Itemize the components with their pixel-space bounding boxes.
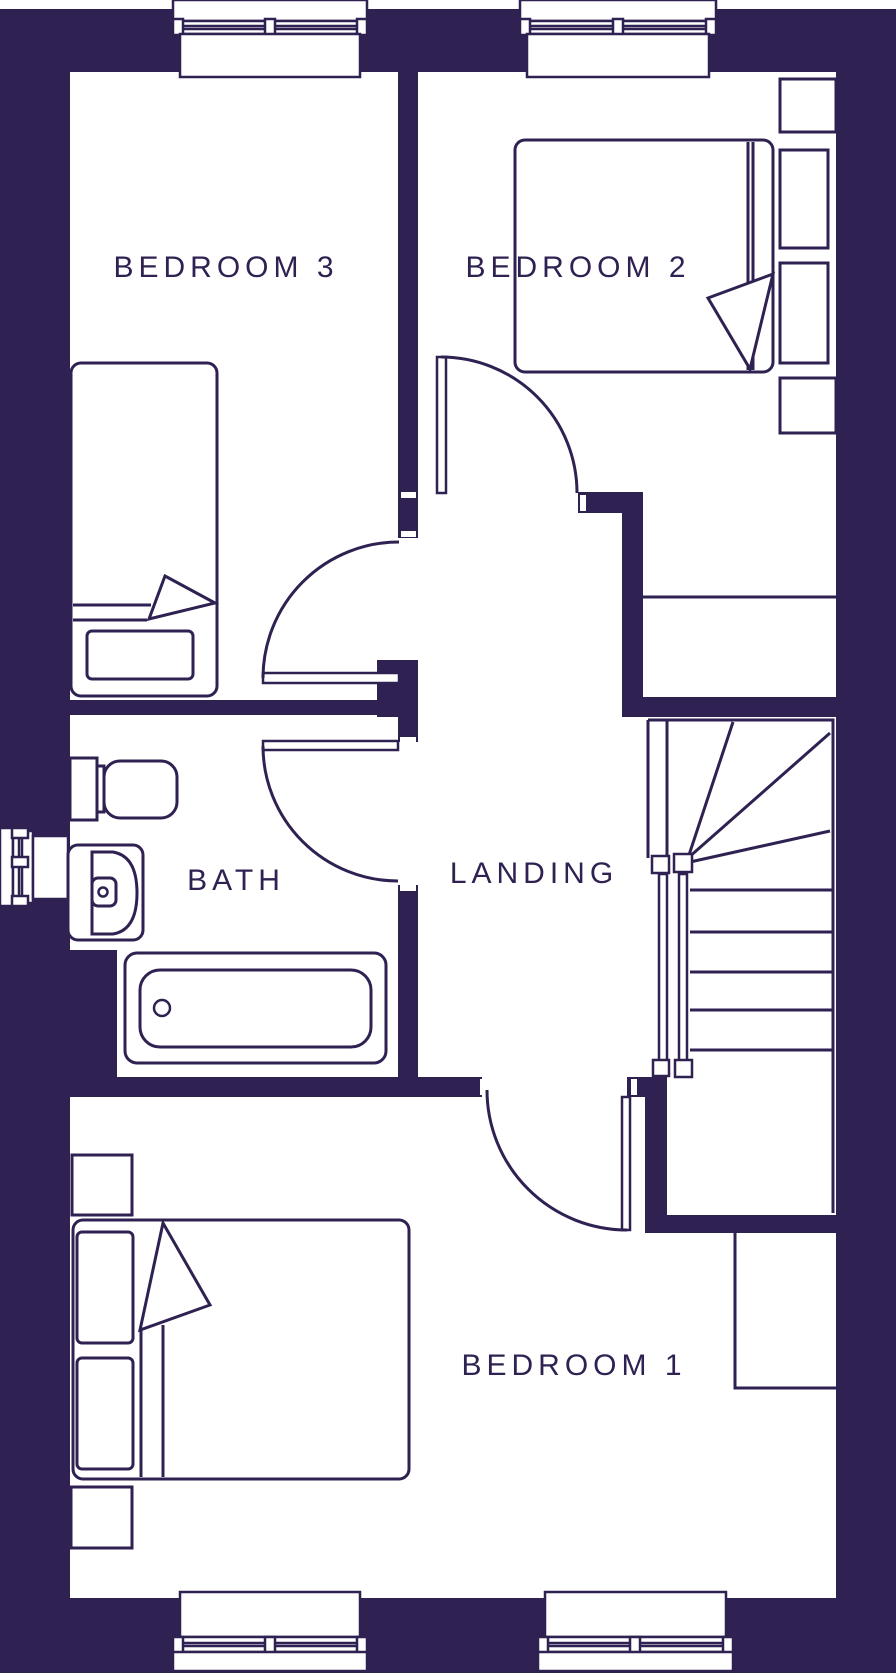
stairs-handrail-left bbox=[659, 874, 667, 1066]
room-label-landing: LANDING bbox=[450, 857, 618, 890]
headboard-cabinet bbox=[780, 150, 828, 248]
window-jamb bbox=[357, 19, 367, 35]
stairs-newel-post bbox=[675, 1060, 692, 1077]
door-bedroom2 bbox=[437, 357, 577, 493]
window-mullion bbox=[12, 857, 28, 867]
room-label-bath: BATH bbox=[187, 864, 285, 897]
window-inner-sill bbox=[33, 836, 68, 899]
door-bath bbox=[263, 741, 398, 881]
window-jamb bbox=[538, 1637, 548, 1653]
window-outer-frame bbox=[173, 1652, 367, 1671]
door-jamb-notch bbox=[400, 885, 416, 891]
furniture-bedroom2 bbox=[515, 79, 836, 597]
wall-bedroom2-alcove-west bbox=[622, 513, 643, 717]
window-jamb bbox=[520, 19, 530, 35]
basin-tap-block bbox=[92, 878, 116, 906]
stairs-winder-treads bbox=[688, 722, 830, 862]
door-leaf bbox=[263, 673, 399, 683]
window-bedroom2 bbox=[520, 0, 716, 77]
door-jamb-notch bbox=[480, 1079, 486, 1095]
wardrobe-alcove-outline bbox=[735, 1233, 836, 1388]
room-label-bedroom2: BEDROOM 2 bbox=[465, 251, 690, 284]
window-inner-sill bbox=[180, 34, 360, 77]
stairs-newel-post bbox=[653, 1060, 669, 1076]
window-mullion bbox=[630, 1637, 640, 1653]
wall-bedroom3-bath bbox=[70, 700, 377, 715]
door-jamb-notch bbox=[580, 495, 586, 511]
window-mullion bbox=[613, 19, 623, 35]
door-jamb-notch bbox=[401, 492, 416, 498]
wall-stairwell-south bbox=[645, 1215, 836, 1233]
door-leaf bbox=[622, 1097, 630, 1230]
window-jamb bbox=[173, 1637, 183, 1653]
stairs-newel-post bbox=[652, 856, 669, 873]
window-jamb bbox=[723, 1637, 733, 1653]
toilet-cistern bbox=[70, 758, 97, 820]
window-bedroom1-left bbox=[173, 1592, 367, 1671]
bed-pillow bbox=[77, 1232, 133, 1343]
door-bedroom1 bbox=[487, 1090, 630, 1230]
window-inner-sill bbox=[527, 34, 709, 77]
bed-pillow bbox=[77, 1358, 133, 1469]
wall-stairs-north bbox=[643, 697, 836, 717]
door-swing-arc bbox=[441, 357, 577, 493]
door-leaf bbox=[263, 741, 398, 750]
window-jamb bbox=[706, 19, 716, 35]
furniture-bedroom3 bbox=[71, 363, 217, 696]
headboard-cabinet bbox=[780, 263, 828, 363]
wall-spine-block bbox=[377, 660, 418, 717]
wall-exterior-right bbox=[836, 9, 896, 1673]
window-bedroom1-right bbox=[538, 1592, 733, 1671]
doors bbox=[263, 357, 630, 1230]
wall-bedroom2-door-stub bbox=[578, 492, 643, 513]
window-mullion bbox=[265, 1637, 275, 1653]
wall-bedroom1-north-left bbox=[70, 1077, 482, 1097]
bedside-table bbox=[72, 1155, 132, 1215]
window-bath bbox=[0, 828, 68, 906]
stairs-outline bbox=[648, 720, 833, 1213]
bedside-table bbox=[71, 1487, 132, 1548]
door-jamb-notch bbox=[400, 737, 416, 742]
stairs-treads bbox=[690, 890, 833, 1050]
stairs-newel-post bbox=[674, 854, 692, 872]
wall-bath-chimney-block bbox=[70, 950, 117, 1077]
bathtub-inner bbox=[140, 970, 371, 1047]
door-swing-arc bbox=[263, 746, 398, 881]
wall-exterior-top bbox=[0, 9, 896, 72]
window-bedroom3 bbox=[173, 0, 367, 77]
bedside-table bbox=[780, 79, 836, 132]
window-mullion bbox=[265, 19, 275, 35]
wall-stairwell-west bbox=[645, 1097, 667, 1215]
room-label-bedroom1: BEDROOM 1 bbox=[461, 1349, 686, 1382]
door-swing-arc bbox=[263, 542, 399, 678]
door-jamb-notch bbox=[401, 531, 416, 537]
window-jamb bbox=[12, 828, 28, 838]
bed-pillow bbox=[87, 631, 193, 679]
window-jamb bbox=[12, 896, 28, 906]
room-label-bedroom3: BEDROOM 3 bbox=[113, 251, 338, 284]
window-inner-sill bbox=[545, 1592, 726, 1637]
furniture-bedroom1 bbox=[71, 1155, 836, 1548]
staircase bbox=[648, 720, 833, 1213]
wall-exterior-bottom bbox=[0, 1598, 896, 1673]
window-jamb bbox=[173, 19, 183, 35]
wall-spine-upper bbox=[398, 72, 418, 538]
window-outer-frame bbox=[538, 1652, 733, 1671]
stairs-handrail-right bbox=[679, 874, 687, 1066]
window-inner-sill bbox=[180, 1592, 360, 1637]
door-jamb-notch bbox=[631, 1079, 637, 1095]
toilet-bowl bbox=[104, 761, 177, 818]
window-jamb bbox=[357, 1637, 367, 1653]
door-leaf bbox=[437, 357, 446, 493]
door-swing-arc bbox=[487, 1090, 627, 1230]
wall-spine-lower bbox=[398, 885, 418, 1077]
floor-plan: BEDROOM 3 BEDROOM 2 BATH LANDING BEDROOM… bbox=[0, 0, 896, 1673]
floor-plan-drawing: BEDROOM 3 BEDROOM 2 BATH LANDING BEDROOM… bbox=[0, 0, 896, 1673]
bedside-table bbox=[780, 378, 836, 433]
